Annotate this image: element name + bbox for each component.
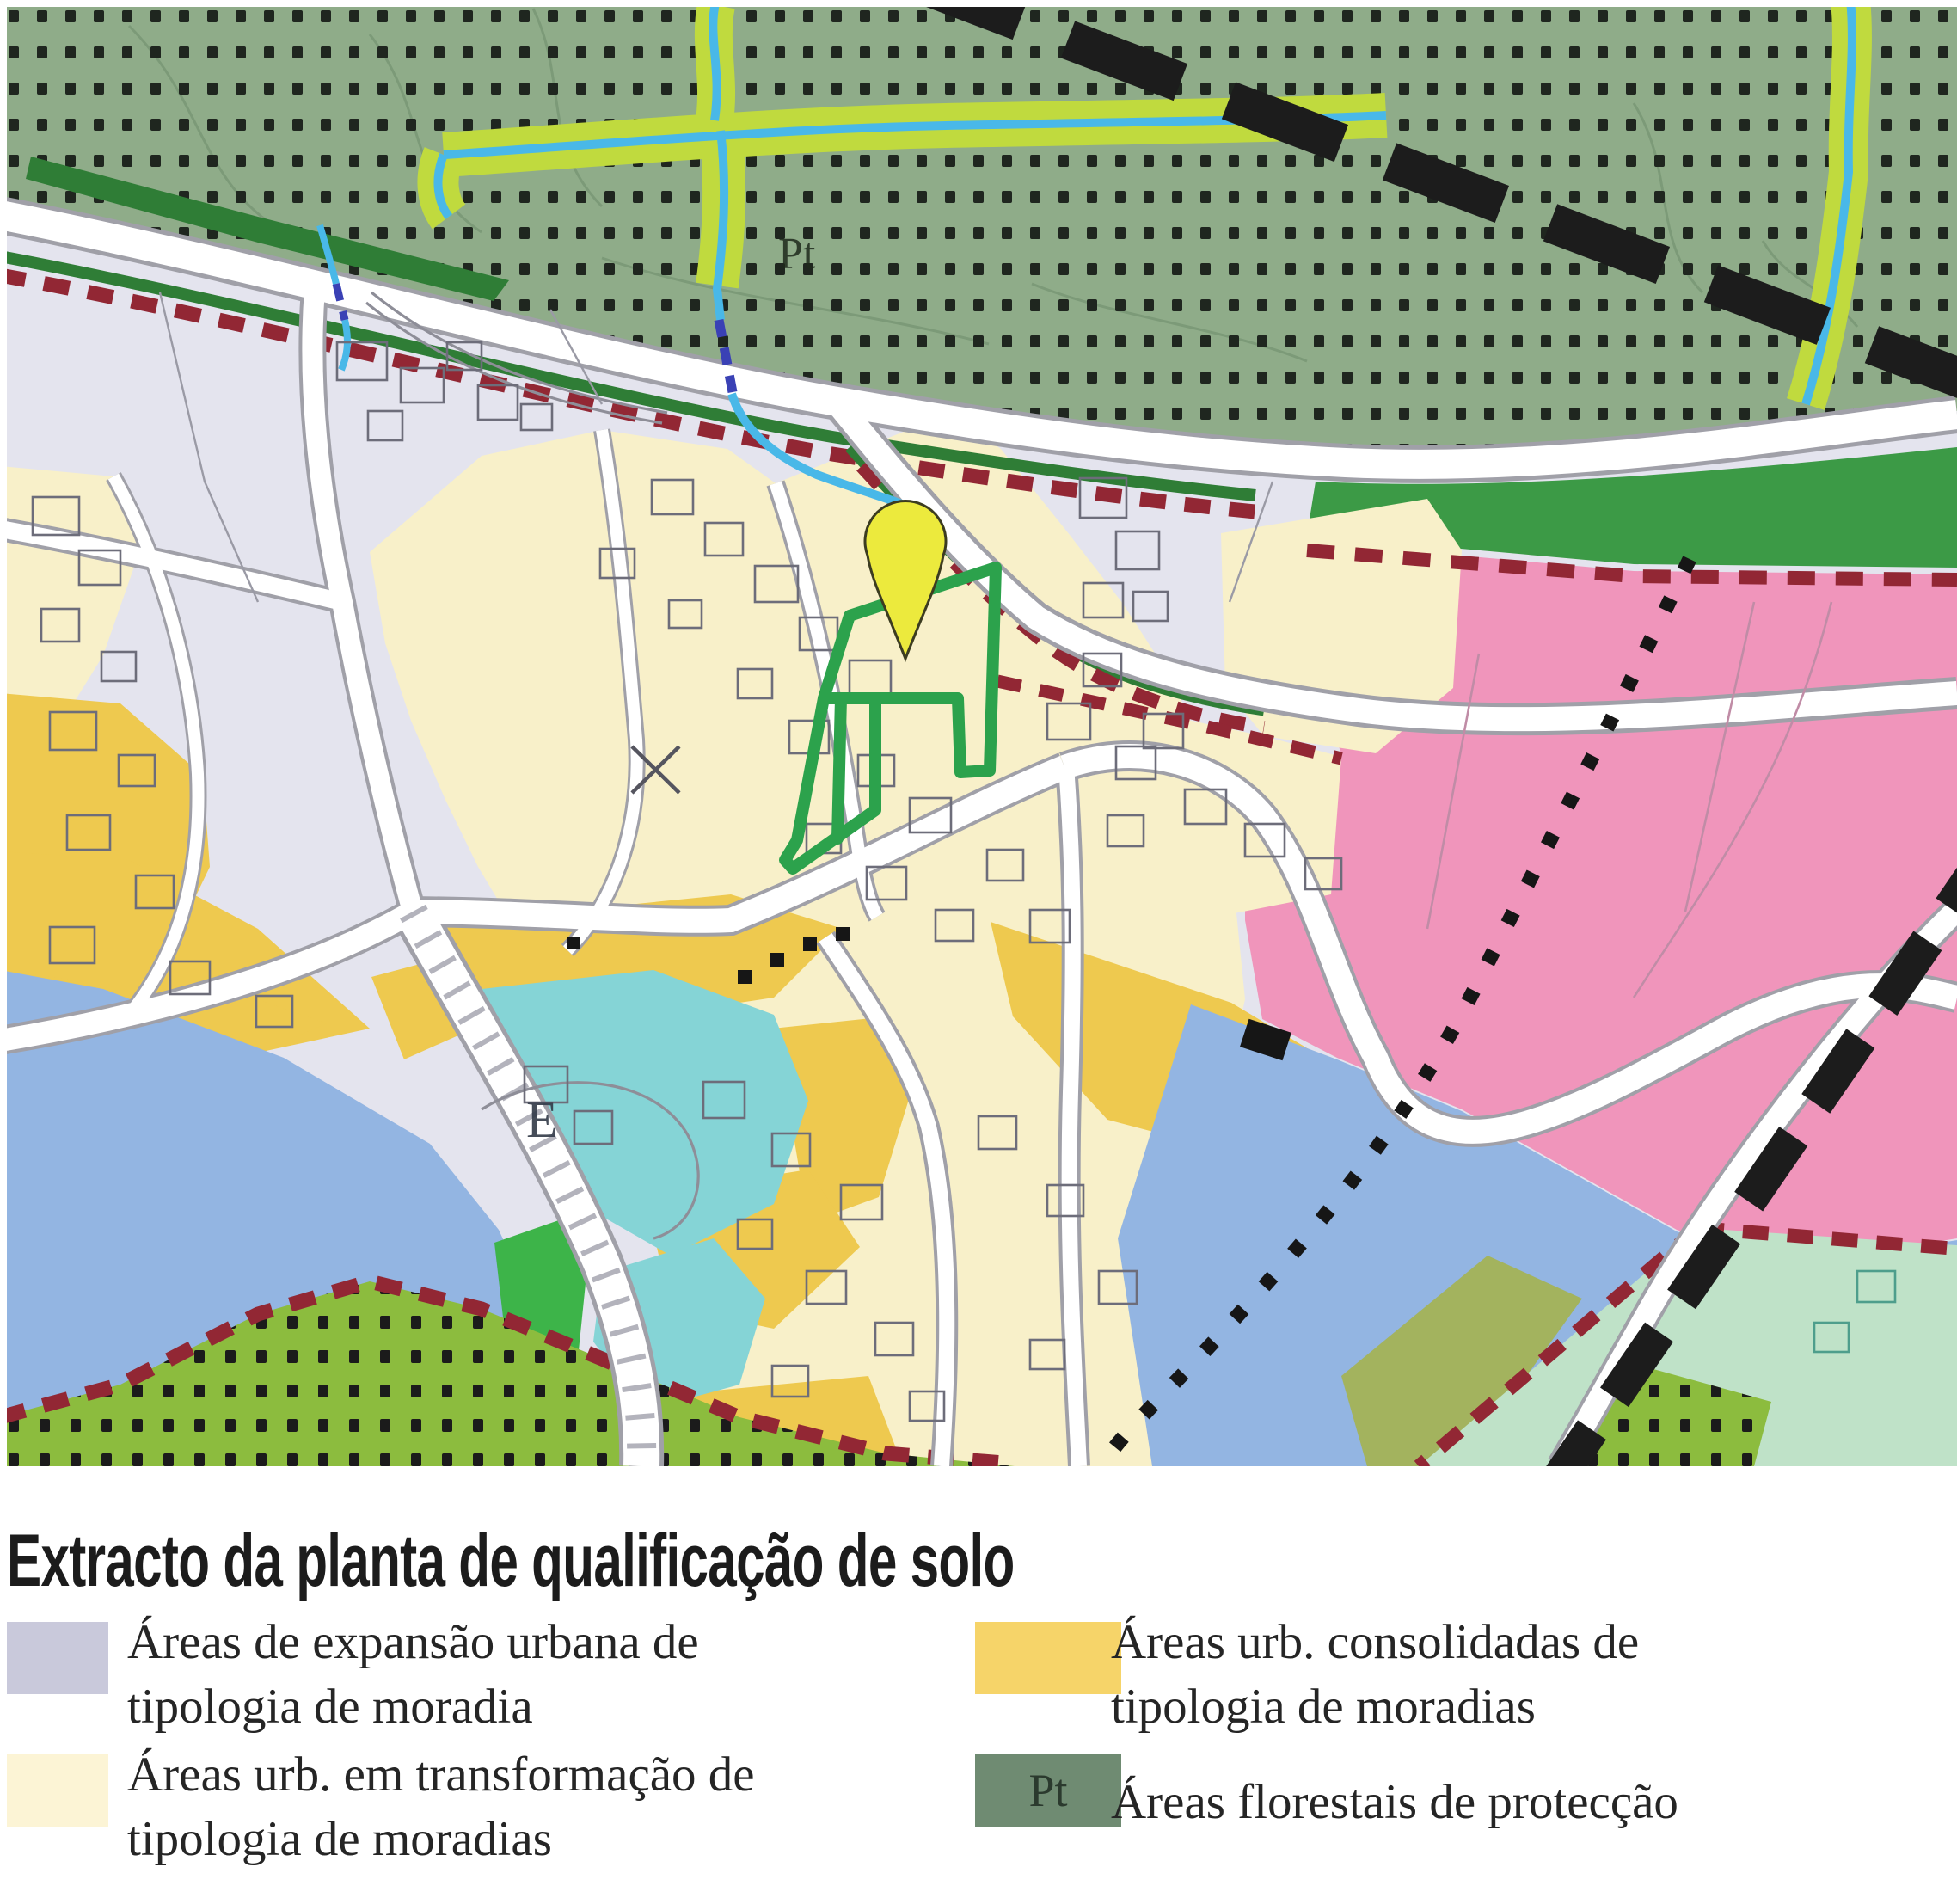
legend-swatch-consolidated: [975, 1622, 1121, 1694]
map-label-e: E: [526, 1091, 558, 1148]
legend-swatch-expansion: [7, 1622, 108, 1694]
legend-swatch-transformation: [7, 1754, 108, 1827]
page-root: Pt E Extracto da planta de qualificação …: [0, 0, 1957, 1904]
map-label-pt: Pt: [778, 230, 816, 279]
legend-label-consolidated: Áreas urb. consolidadas de tipologia de …: [1111, 1610, 1639, 1739]
map-left-margin: [0, 0, 7, 1466]
legend-code-pt: Pt: [1028, 1764, 1067, 1817]
map-canvas: Pt E: [0, 0, 1957, 1466]
page-title: Extracto da planta de qualificação de so…: [7, 1519, 1015, 1604]
map-top-margin: [0, 0, 1957, 7]
zoning-map: Pt E: [0, 0, 1957, 1466]
legend-swatch-forest: Pt: [975, 1754, 1121, 1827]
legend-label-transformation: Áreas urb. em transformação de tipologia…: [127, 1742, 755, 1871]
legend-label-forest: Áreas florestais de protecção: [1111, 1770, 1678, 1834]
legend-label-expansion: Áreas de expansão urbana de tipologia de…: [127, 1610, 699, 1739]
